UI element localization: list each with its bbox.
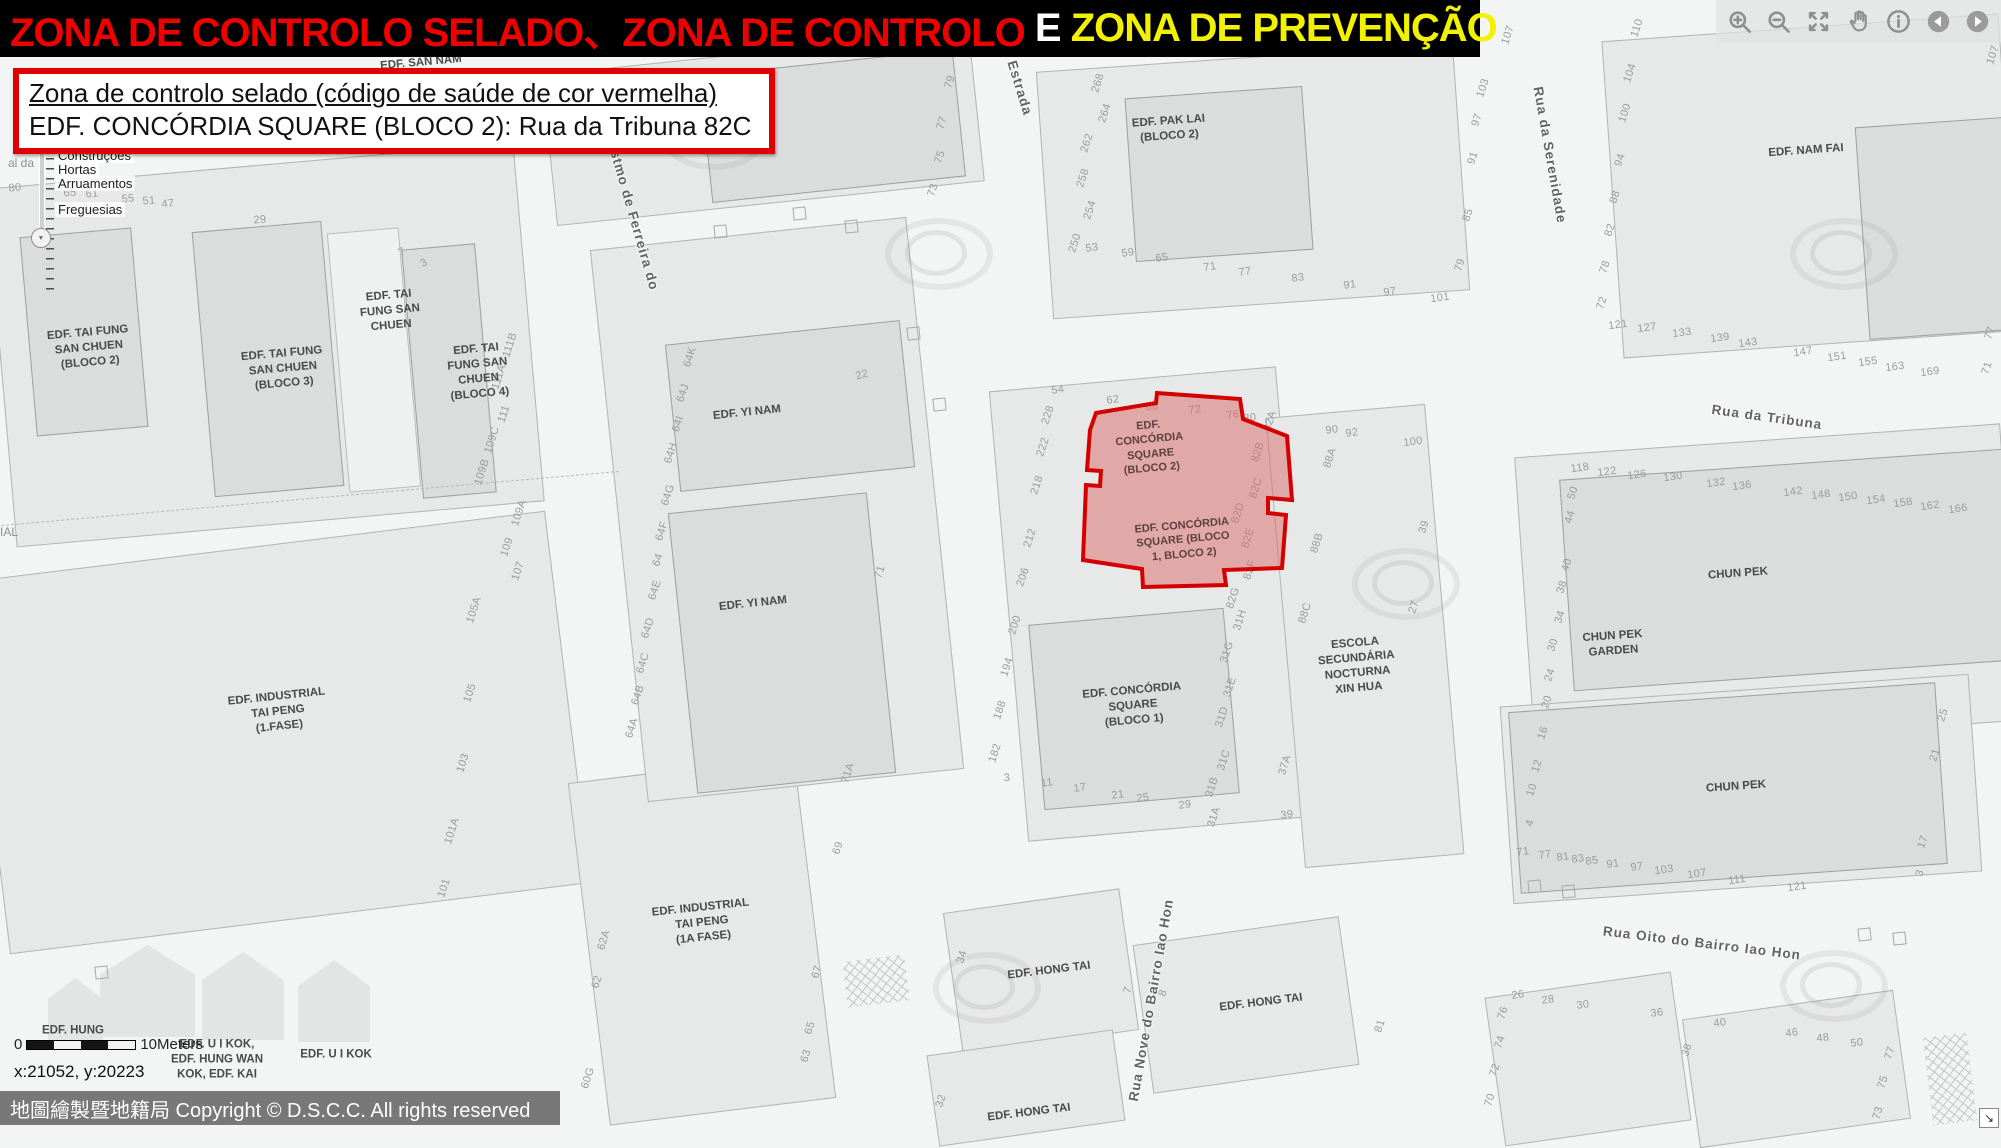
- map-feature-square: [792, 206, 806, 220]
- house-number: 110: [1628, 17, 1645, 38]
- sealed-building-label: EDF. CONCÓRDIA SQUARE (BLOCO 2): [1114, 416, 1187, 479]
- street-label: Rua da Serenidade: [1531, 85, 1570, 224]
- house-number: 70: [1482, 1092, 1497, 1108]
- building-label: ESCOLA SECUNDÁRIA NOCTURNA XIN HUA: [1316, 633, 1398, 699]
- building-label: EDF. PAK LAI (BLOCO 2): [1131, 112, 1206, 147]
- house-number: 71: [1203, 260, 1217, 274]
- building-label: EDF. U I KOK: [300, 1048, 372, 1063]
- building-footprint: [665, 320, 915, 492]
- info-box-title: Zona de controlo selado (código de saúde…: [29, 78, 759, 109]
- map-application: { "header": { "segments": [ {"text": "ZO…: [0, 0, 2001, 1134]
- house-number: 169: [1920, 365, 1941, 380]
- zoom-out-icon[interactable]: [1762, 4, 1796, 38]
- house-footprint: [100, 945, 195, 1037]
- sealed-building-label: EDF. CONCÓRDIA SQUARE (BLOCO 1, BLOCO 2): [1134, 515, 1232, 566]
- scale-bar-zero: 0: [14, 1036, 22, 1053]
- legend-slider-knob[interactable]: ▼: [31, 228, 51, 248]
- building-label: EDF. TAI FUNG SAN CHUEN: [358, 286, 422, 336]
- watermark-swirl: [933, 952, 1041, 1024]
- map-feature-square: [713, 224, 727, 238]
- house-number: 83: [1291, 271, 1305, 285]
- page-title-segment: ZONA DE PREVENÇÃO: [1061, 6, 1497, 51]
- building-label: CHUN PEK GARDEN: [1582, 627, 1644, 661]
- map-feature-square: [932, 397, 946, 411]
- house-number: 64A: [623, 716, 641, 739]
- house-number: 71: [1979, 360, 1994, 376]
- page-title-segment: E: [1035, 6, 1061, 51]
- map-feature-square: [906, 326, 920, 340]
- zoom-in-icon[interactable]: [1722, 4, 1756, 38]
- house-number: 29: [1178, 798, 1192, 812]
- house-number: 11: [1040, 776, 1054, 790]
- house-number: 21: [1111, 788, 1125, 802]
- house-footprint: [298, 960, 370, 1042]
- copyright-bar: 地圖繪製暨地籍局 Copyright © D.S.C.C. All rights…: [0, 1091, 560, 1125]
- house-footprint: [202, 952, 284, 1040]
- house-number: 25: [1136, 791, 1150, 805]
- house-number: 151: [1827, 350, 1848, 365]
- full-extent-icon[interactable]: [1802, 4, 1836, 38]
- street-label: Rua Oito do Bairro Iao Hon: [1602, 923, 1802, 962]
- building-label: EDF. CONCÓRDIA SQUARE (BLOCO 1): [1082, 679, 1185, 732]
- crosshatch-patch: [1923, 1033, 1977, 1126]
- crosshatch-patch: [842, 954, 909, 1007]
- watermark-swirl: [885, 218, 993, 290]
- house-number: 47: [161, 197, 175, 210]
- map-text-fragment: IAL: [0, 525, 18, 539]
- house-number: 85: [1585, 854, 1599, 868]
- previous-extent-icon[interactable]: [1921, 4, 1955, 38]
- scale-bar-distance: 10Meters: [140, 1036, 203, 1053]
- house-number: 147: [1793, 345, 1814, 360]
- house-number: 53: [1085, 241, 1099, 255]
- map-feature-square: [1527, 879, 1541, 893]
- house-number: 26: [1511, 988, 1525, 1002]
- next-extent-icon[interactable]: [1961, 4, 1995, 38]
- map-feature-square: [844, 219, 858, 233]
- map-feature-square: [94, 965, 108, 979]
- house-number: 71: [1516, 845, 1530, 859]
- legend-item-arruamentos[interactable]: Arruamentos: [55, 176, 135, 191]
- legend-item-hortas[interactable]: Hortas: [55, 162, 99, 177]
- house-number: 163: [1885, 360, 1906, 375]
- house-number: 155: [1858, 355, 1879, 370]
- pan-icon[interactable]: [1841, 4, 1875, 38]
- info-box-address: EDF. CONCÓRDIA SQUARE (BLOCO 2): Rua da …: [29, 111, 759, 142]
- house-number: 48: [1816, 1031, 1830, 1045]
- identify-icon[interactable]: [1881, 4, 1915, 38]
- house-number: 72: [1594, 295, 1609, 311]
- house-number: 90: [1325, 423, 1339, 437]
- house-number: 46: [1785, 1026, 1799, 1040]
- house-number: 97: [1630, 860, 1644, 874]
- house-number: 29: [253, 213, 267, 226]
- house-number: 40: [1713, 1016, 1727, 1030]
- house-number: 60G: [579, 1066, 597, 1090]
- house-number: 69: [830, 840, 845, 856]
- resize-corner-icon[interactable]: ↘: [1979, 1108, 1999, 1128]
- sealed-zone-info-box: Zona de controlo selado (código de saúde…: [13, 68, 775, 154]
- house-number: 77: [1982, 325, 1997, 341]
- cursor-coordinates: x:21052, y:20223: [14, 1062, 144, 1082]
- house-number: 91: [1465, 150, 1480, 166]
- house-number: 92: [1345, 426, 1359, 440]
- legend-item-freguesias[interactable]: Freguesias: [55, 202, 125, 217]
- street-label: Rua da Tribuna: [1711, 402, 1824, 432]
- house-number: 3: [1003, 772, 1011, 785]
- map-toolbar: [1716, 0, 2001, 42]
- page-title-segment: ZONA DE CONTROLO SELADO、ZONA DE CONTROLO: [10, 0, 1035, 58]
- house-number: 97: [1383, 285, 1397, 299]
- house-number: 81: [1556, 850, 1570, 864]
- map-feature-square: [1857, 927, 1871, 941]
- house-number: 182: [986, 742, 1003, 764]
- house-number: 103: [1474, 77, 1491, 99]
- scale-bar-graphic: [26, 1040, 136, 1050]
- house-number: 65: [1155, 251, 1169, 265]
- house-number: 121: [1787, 880, 1808, 895]
- house-number: 111: [1727, 873, 1746, 887]
- house-number: 118: [1570, 461, 1590, 475]
- house-number: 77: [1538, 848, 1552, 862]
- house-number: 101: [1430, 291, 1451, 306]
- house-number: 83: [1571, 852, 1585, 866]
- parcel-outline: [927, 1029, 1126, 1146]
- house-number: 59: [1121, 246, 1135, 260]
- building-footprint: [668, 492, 896, 793]
- street-label: Estrada: [1005, 59, 1036, 117]
- house-number: 80: [8, 181, 22, 194]
- house-number: 97: [1469, 112, 1484, 128]
- house-number: 81: [1372, 1018, 1387, 1034]
- map-feature-square: [1561, 884, 1575, 898]
- map-text-fragment: al da: [8, 156, 34, 170]
- legend-tick-marks: [46, 148, 54, 298]
- house-number: 51: [142, 194, 156, 207]
- parcel-outline: [1682, 990, 1911, 1148]
- building-label: EDF. TAI FUNG SAN CHUEN (BLOCO 2): [46, 322, 131, 374]
- map-canvas[interactable]: 8065615551472973111B111A111109C109B109A1…: [0, 0, 2001, 1134]
- building-label: EDF. TAI FUNG SAN CHUEN (BLOCO 4): [445, 340, 510, 405]
- page-title-bar: ZONA DE CONTROLO SELADO、ZONA DE CONTROLO…: [0, 0, 1480, 57]
- house-number: 50: [1850, 1036, 1864, 1050]
- house-number: 91: [1343, 278, 1357, 292]
- house-number: 28: [1541, 993, 1555, 1007]
- scale-bar: 0 10Meters: [14, 1036, 203, 1053]
- house-number: 17: [1073, 781, 1087, 795]
- watermark-swirl: [1790, 218, 1898, 290]
- house-number: 188: [991, 699, 1008, 721]
- building-footprint: [1124, 86, 1313, 262]
- house-number: 30: [1576, 998, 1590, 1012]
- building-label: EDF. TAI FUNG SAN CHUEN (BLOCO 3): [240, 343, 325, 395]
- house-number: 91: [1606, 857, 1620, 871]
- house-number: 73: [925, 182, 940, 198]
- house-number: 78: [1597, 259, 1612, 275]
- house-number: 77: [1238, 265, 1252, 279]
- house-number: 39: [1280, 808, 1294, 822]
- house-number: 36: [1650, 1006, 1664, 1020]
- house-number: 107: [1499, 24, 1516, 46]
- map-feature-square: [1892, 931, 1906, 945]
